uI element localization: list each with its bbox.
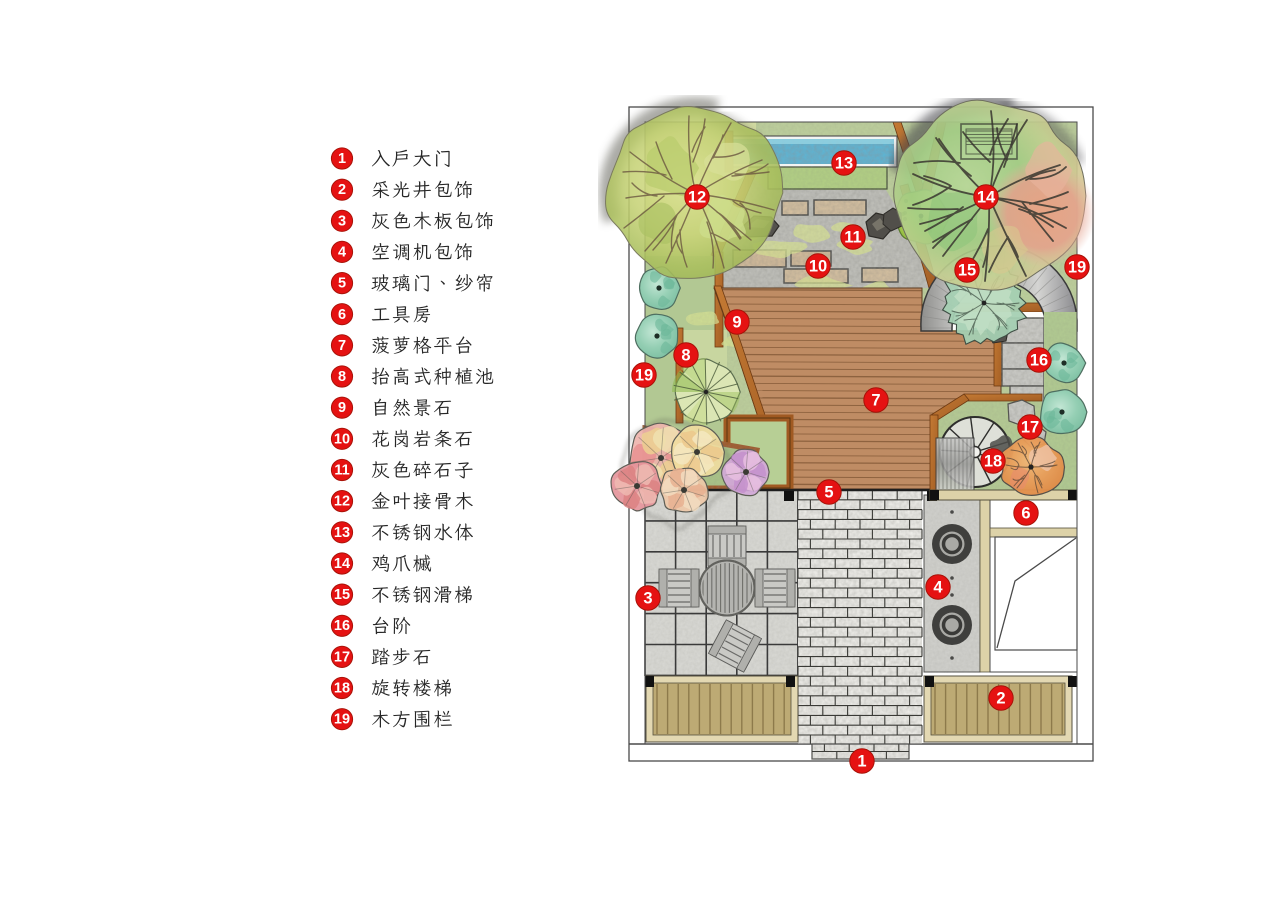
svg-text:10: 10 xyxy=(334,431,350,447)
svg-text:11: 11 xyxy=(334,463,349,479)
svg-text:13: 13 xyxy=(334,525,350,541)
svg-text:16: 16 xyxy=(334,618,350,634)
svg-text:14: 14 xyxy=(334,556,350,572)
svg-text:7: 7 xyxy=(871,392,880,410)
svg-text:1: 1 xyxy=(338,151,346,167)
svg-text:17: 17 xyxy=(1021,419,1039,437)
svg-text:12: 12 xyxy=(688,189,706,207)
svg-text:5: 5 xyxy=(338,276,346,292)
svg-text:10: 10 xyxy=(809,258,827,276)
svg-text:9: 9 xyxy=(338,400,346,416)
svg-text:9: 9 xyxy=(732,314,741,332)
svg-text:3: 3 xyxy=(338,213,346,229)
svg-text:8: 8 xyxy=(681,347,690,365)
svg-text:4: 4 xyxy=(338,244,346,260)
svg-text:3: 3 xyxy=(643,590,652,608)
svg-text:14: 14 xyxy=(977,189,996,207)
svg-text:6: 6 xyxy=(338,307,346,323)
svg-text:18: 18 xyxy=(334,681,350,697)
svg-text:7: 7 xyxy=(338,338,346,354)
svg-text:11: 11 xyxy=(844,229,861,247)
svg-text:1: 1 xyxy=(857,753,866,771)
svg-text:13: 13 xyxy=(835,155,853,173)
svg-text:6: 6 xyxy=(1021,505,1030,523)
svg-text:17: 17 xyxy=(334,649,350,665)
svg-text:15: 15 xyxy=(958,262,976,280)
svg-text:18: 18 xyxy=(984,453,1002,471)
svg-text:5: 5 xyxy=(824,484,833,502)
svg-text:12: 12 xyxy=(334,494,350,510)
svg-text:16: 16 xyxy=(1030,352,1048,370)
svg-text:19: 19 xyxy=(1068,259,1086,277)
svg-text:15: 15 xyxy=(334,587,350,603)
svg-text:19: 19 xyxy=(334,712,350,728)
svg-text:2: 2 xyxy=(338,182,346,198)
svg-text:8: 8 xyxy=(338,369,346,385)
svg-text:4: 4 xyxy=(933,579,943,597)
svg-text:2: 2 xyxy=(996,690,1005,708)
svg-text:19: 19 xyxy=(635,367,653,385)
